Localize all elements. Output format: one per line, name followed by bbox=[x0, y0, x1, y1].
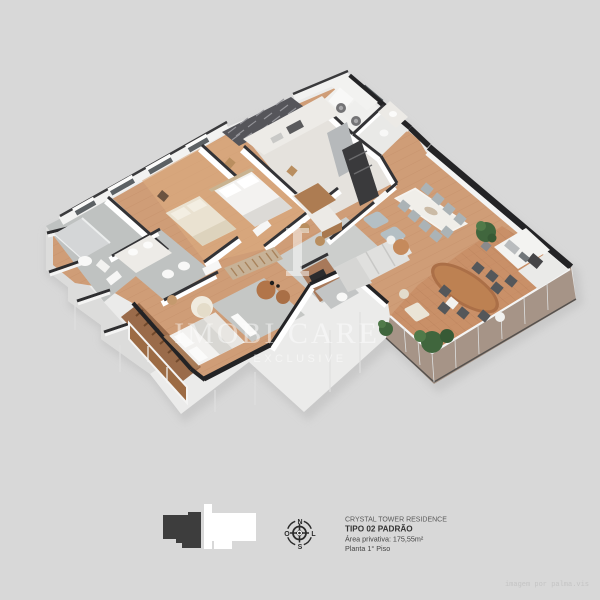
svg-text:O: O bbox=[284, 531, 290, 538]
svg-text:CRYSTAL TOWER RESIDENCE: CRYSTAL TOWER RESIDENCE bbox=[345, 517, 447, 524]
svg-text:Planta 1° Piso: Planta 1° Piso bbox=[345, 544, 390, 553]
svg-text:Área privativa: 175,55m²: Área privativa: 175,55m² bbox=[345, 535, 424, 544]
svg-text:imagem por palma.vis: imagem por palma.vis bbox=[505, 581, 589, 589]
svg-text:EXCLUSIVE: EXCLUSIVE bbox=[253, 353, 346, 365]
svg-text:S: S bbox=[298, 544, 303, 551]
svg-text:IMOBI CARE: IMOBI CARE bbox=[174, 317, 380, 350]
svg-text:N: N bbox=[297, 519, 302, 526]
svg-text:TIPO 02 PADRÃO: TIPO 02 PADRÃO bbox=[345, 524, 413, 534]
svg-text:L: L bbox=[311, 531, 316, 538]
